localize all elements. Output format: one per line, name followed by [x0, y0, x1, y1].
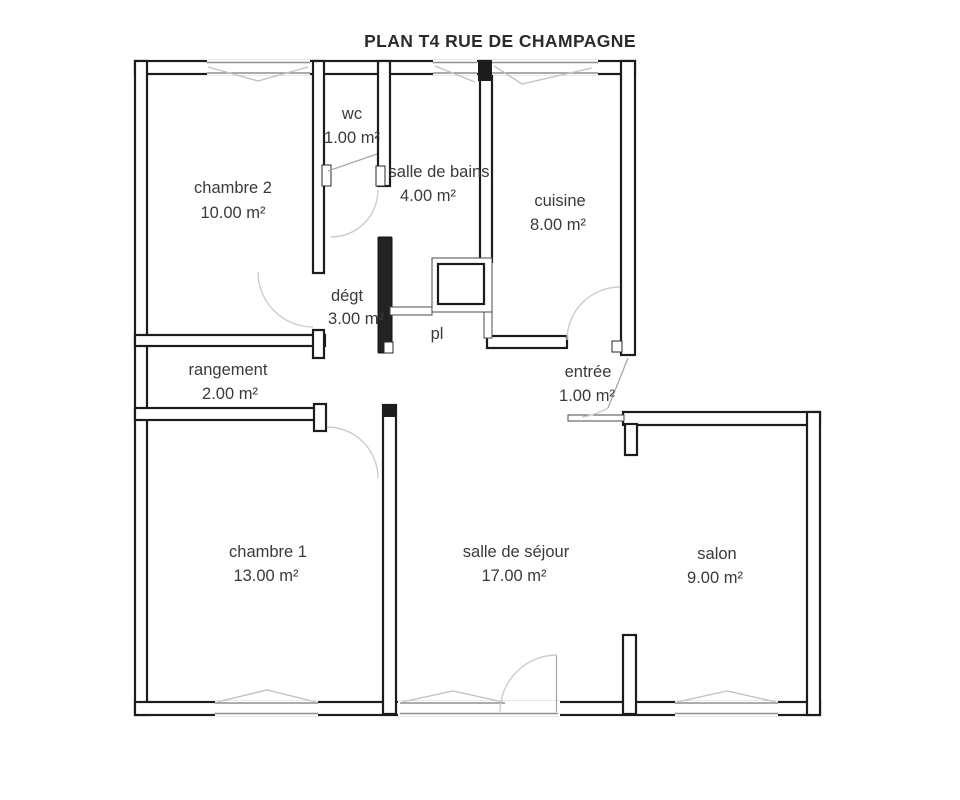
room-label-entree: entrée — [565, 363, 612, 381]
wall-cap-rangement-bottom — [314, 404, 326, 431]
sill-entree — [568, 415, 624, 421]
jamb-wc-left — [322, 165, 331, 186]
wall-right-kitchen — [621, 61, 635, 355]
room-area-cuisine: 8.00 m² — [530, 216, 586, 234]
room-label-rangement: rangement — [189, 361, 268, 379]
window-chambre1 — [215, 690, 318, 716]
room-label-wc: wc — [341, 105, 362, 123]
room-area-rangement: 2.00 m² — [202, 385, 258, 403]
wall-right-salon — [807, 412, 820, 715]
room-label-sejour: salle de séjour — [463, 543, 570, 561]
room-label-degt: dégt — [331, 287, 364, 305]
window-salon — [675, 691, 778, 716]
floor-plan-drawing: PLAN T4 RUE DE CHAMPAGNE chambre 2 10.00… — [0, 0, 960, 800]
room-area-sejour: 17.00 m² — [481, 567, 547, 585]
room-label-pl: pl — [431, 325, 444, 343]
wall-cap-divider-top — [383, 405, 396, 417]
room-area-degt: 3.00 m² — [328, 310, 384, 328]
plan-title: PLAN T4 RUE DE CHAMPAGNE — [364, 31, 636, 51]
room-area-salle-de-bains: 4.00 m² — [400, 187, 456, 205]
wall-rangement-bottom — [135, 408, 315, 420]
wall-stub-entree — [625, 424, 637, 455]
jamb-degt-foot — [384, 342, 393, 353]
room-label-salon: salon — [697, 545, 736, 563]
room-label-chambre1: chambre 1 — [229, 543, 307, 561]
wall-rangement-top — [135, 335, 325, 346]
wall-degt-right — [378, 237, 392, 353]
jamb-entree — [612, 341, 622, 352]
window-chambre2 — [207, 60, 310, 81]
room-area-chambre2: 10.00 m² — [200, 204, 266, 222]
room-label-chambre2: chambre 2 — [194, 179, 272, 197]
door-arc-chambre1 — [327, 427, 378, 478]
placard-inner-box — [438, 264, 484, 304]
wall-cuisine-bottom — [487, 336, 567, 348]
room-area-entree: 1.00 m² — [559, 387, 615, 405]
door-arc-salle-de-bains — [331, 190, 378, 237]
room-area-chambre1: 13.00 m² — [233, 567, 299, 585]
wall-left — [135, 61, 147, 715]
window-cuisine — [492, 60, 598, 84]
wall-divider-sejour — [383, 405, 396, 714]
room-label-salle-de-bains: salle de bains — [389, 163, 490, 181]
window-salle-de-bains — [433, 60, 477, 82]
wall-cap-cuisine-left-top — [478, 62, 493, 81]
placard-shelf — [390, 307, 432, 315]
door-arc-chambre2 — [258, 272, 313, 327]
wall-salon-top — [623, 412, 820, 425]
door-leaf-wc — [328, 154, 377, 171]
room-label-cuisine: cuisine — [534, 192, 585, 210]
jamb-wc-right — [376, 166, 385, 186]
wall-cap-rangement-top — [313, 330, 324, 358]
room-area-wc: 1.00 m² — [324, 129, 380, 147]
room-area-salon: 9.00 m² — [687, 569, 743, 587]
placard-connector — [484, 312, 492, 338]
window-sejour — [398, 691, 560, 716]
floor-plan-page: PLAN T4 RUE DE CHAMPAGNE chambre 2 10.00… — [0, 0, 960, 800]
wall-stub-salon-bottom — [623, 635, 636, 714]
wall-cuisine-left — [480, 61, 492, 262]
door-arc-cuisine — [567, 287, 620, 340]
